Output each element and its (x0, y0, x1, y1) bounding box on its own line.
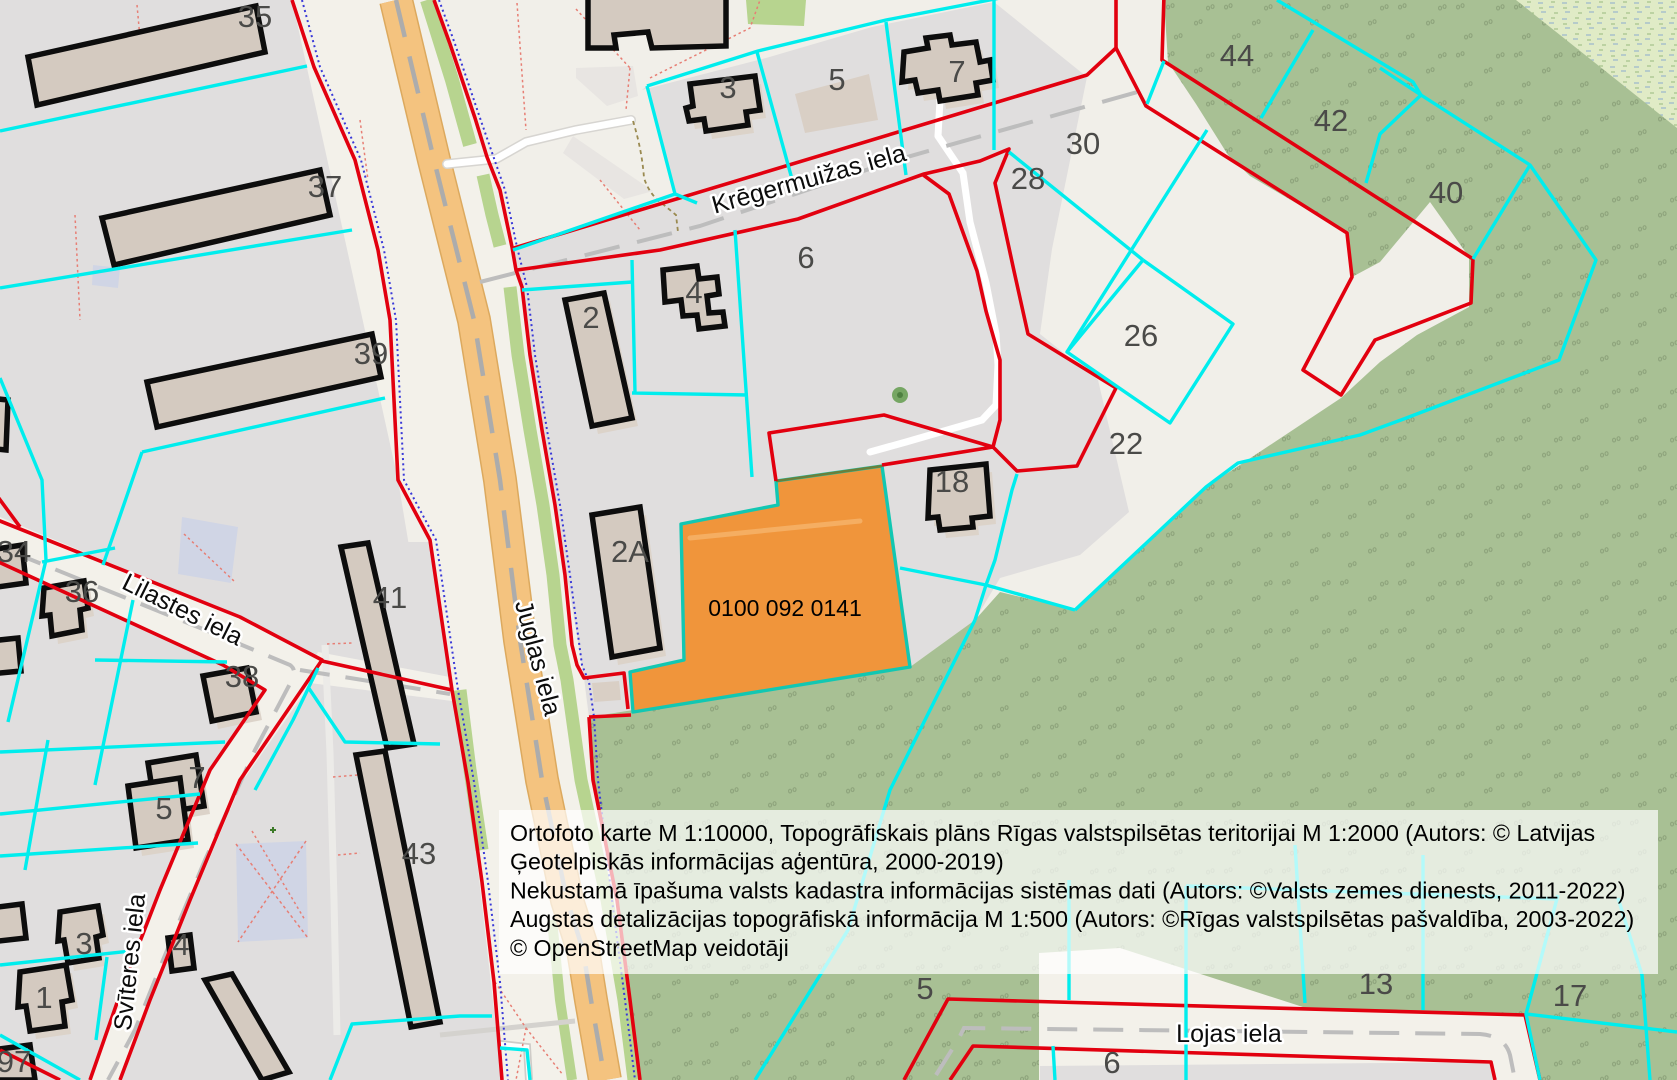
svg-text:28: 28 (1011, 161, 1045, 196)
svg-text:0100 092 0141: 0100 092 0141 (708, 595, 862, 621)
svg-text:38: 38 (225, 659, 259, 694)
svg-text:4: 4 (685, 275, 702, 310)
svg-text:3: 3 (75, 926, 92, 961)
svg-text:34: 34 (0, 534, 31, 569)
svg-text:17: 17 (1553, 978, 1587, 1013)
svg-text:5: 5 (916, 971, 933, 1006)
svg-text:41: 41 (373, 580, 407, 615)
svg-text:37: 37 (308, 169, 342, 204)
svg-text:1: 1 (35, 980, 52, 1015)
svg-text:3: 3 (719, 70, 736, 105)
svg-text:Nekustamā īpašuma valsts kadas: Nekustamā īpašuma valsts kadastra inform… (510, 877, 1626, 903)
svg-text:42: 42 (1314, 103, 1348, 138)
svg-text:© OpenStreetMap veidotāji: © OpenStreetMap veidotāji (510, 935, 789, 961)
svg-text:7: 7 (948, 54, 965, 89)
svg-text:4: 4 (172, 927, 189, 962)
svg-text:2A: 2A (611, 534, 649, 569)
svg-text:40: 40 (1429, 175, 1463, 210)
svg-text:7: 7 (188, 760, 205, 795)
svg-text:35: 35 (238, 0, 272, 34)
svg-text:Lojas iela: Lojas iela (1176, 1020, 1282, 1048)
svg-text:Augstas detalizācijas topogrāf: Augstas detalizācijas topogrāfiskā infor… (510, 906, 1634, 932)
svg-text:22: 22 (1109, 426, 1143, 461)
svg-text:6: 6 (1103, 1045, 1120, 1080)
svg-text:Ortofoto karte M 1:10000, Topo: Ortofoto karte M 1:10000, Topogrāfiskais… (510, 820, 1595, 846)
svg-text:5: 5 (155, 791, 172, 826)
svg-text:18: 18 (935, 464, 969, 499)
svg-text:6: 6 (797, 240, 814, 275)
svg-text:26: 26 (1124, 318, 1158, 353)
svg-text:36: 36 (65, 574, 99, 609)
svg-text:5: 5 (828, 62, 845, 97)
svg-text:43: 43 (402, 836, 436, 871)
svg-text:30: 30 (1066, 126, 1100, 161)
svg-text:97: 97 (0, 1044, 31, 1079)
svg-text:2: 2 (582, 300, 599, 335)
svg-text:Ģeotelpiskās informācijas aģen: Ģeotelpiskās informācijas aģentūra, 2000… (510, 849, 1004, 875)
svg-text:39: 39 (354, 336, 388, 371)
svg-text:44: 44 (1220, 38, 1254, 73)
